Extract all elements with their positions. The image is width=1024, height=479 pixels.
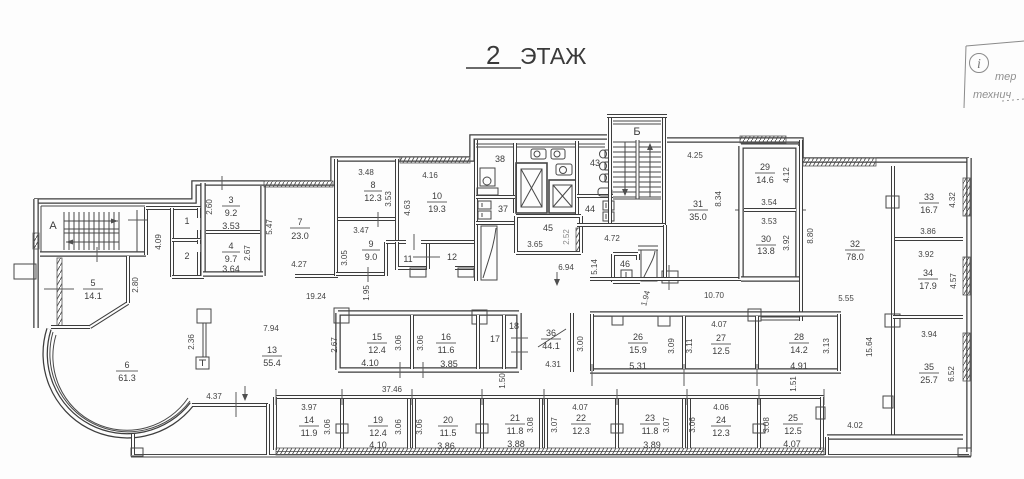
svg-text:12: 12 bbox=[447, 252, 457, 262]
svg-text:21: 21 bbox=[510, 413, 520, 423]
svg-text:2.60: 2.60 bbox=[205, 199, 214, 215]
svg-text:А: А bbox=[49, 220, 57, 232]
svg-text:2: 2 bbox=[184, 251, 189, 261]
svg-text:6: 6 bbox=[124, 360, 129, 370]
svg-text:7: 7 bbox=[297, 217, 302, 227]
svg-text:4.31: 4.31 bbox=[545, 360, 561, 369]
svg-text:3.13: 3.13 bbox=[822, 338, 831, 354]
svg-text:3.05: 3.05 bbox=[340, 250, 349, 266]
svg-text:3.07: 3.07 bbox=[550, 417, 559, 433]
svg-text:4.32: 4.32 bbox=[948, 192, 957, 208]
svg-text:4.02: 4.02 bbox=[847, 421, 863, 430]
svg-text:3.92: 3.92 bbox=[918, 250, 934, 259]
svg-text:9.7: 9.7 bbox=[225, 254, 238, 264]
svg-text:5.47: 5.47 bbox=[265, 219, 274, 235]
svg-text:4.91: 4.91 bbox=[790, 361, 808, 371]
svg-text:5.14: 5.14 bbox=[590, 259, 599, 275]
svg-text:6.52: 6.52 bbox=[947, 366, 956, 382]
svg-text:33: 33 bbox=[924, 192, 934, 202]
svg-text:3.92: 3.92 bbox=[782, 235, 791, 251]
svg-text:6.94: 6.94 bbox=[558, 263, 574, 272]
svg-text:37.46: 37.46 bbox=[382, 385, 403, 394]
svg-text:45: 45 bbox=[543, 223, 553, 233]
svg-text:3.88: 3.88 bbox=[507, 439, 525, 449]
svg-text:4.27: 4.27 bbox=[291, 260, 307, 269]
svg-text:3: 3 bbox=[228, 195, 233, 205]
svg-text:3.06: 3.06 bbox=[394, 335, 403, 351]
svg-text:9.0: 9.0 bbox=[365, 252, 378, 262]
svg-text:5.55: 5.55 bbox=[838, 294, 854, 303]
svg-text:4.63: 4.63 bbox=[403, 200, 412, 216]
svg-text:2.80: 2.80 bbox=[131, 277, 140, 293]
svg-text:3.00: 3.00 bbox=[576, 336, 585, 352]
svg-text:14.2: 14.2 bbox=[790, 345, 808, 355]
svg-text:32: 32 bbox=[850, 239, 860, 249]
svg-text:4.07: 4.07 bbox=[711, 320, 727, 329]
svg-text:1.51: 1.51 bbox=[789, 376, 798, 392]
svg-text:3.08: 3.08 bbox=[526, 417, 535, 433]
svg-text:12.3: 12.3 bbox=[364, 193, 382, 203]
svg-text:24: 24 bbox=[716, 415, 726, 425]
svg-text:11.6: 11.6 bbox=[438, 345, 455, 355]
svg-text:31: 31 bbox=[693, 199, 703, 209]
svg-text:78.0: 78.0 bbox=[846, 252, 864, 262]
svg-text:61.3: 61.3 bbox=[118, 373, 136, 383]
svg-text:11.8: 11.8 bbox=[642, 426, 659, 436]
svg-text:28: 28 bbox=[794, 332, 804, 342]
svg-text:18: 18 bbox=[509, 321, 519, 331]
svg-text:12.4: 12.4 bbox=[368, 345, 386, 355]
svg-text:8.34: 8.34 bbox=[714, 191, 723, 207]
svg-text:4.06: 4.06 bbox=[713, 403, 729, 412]
svg-text:22: 22 bbox=[576, 413, 586, 423]
svg-text:29: 29 bbox=[760, 162, 770, 172]
svg-text:9.2: 9.2 bbox=[225, 208, 238, 218]
svg-text:3.86: 3.86 bbox=[920, 227, 936, 236]
svg-text:ЭТАЖ: ЭТАЖ bbox=[520, 43, 586, 69]
svg-text:19.24: 19.24 bbox=[306, 292, 327, 301]
svg-text:1.95: 1.95 bbox=[362, 285, 371, 301]
svg-text:3.06: 3.06 bbox=[688, 417, 697, 433]
svg-text:25: 25 bbox=[788, 413, 798, 423]
svg-text:3.86: 3.86 bbox=[437, 441, 455, 451]
svg-text:35: 35 bbox=[924, 362, 934, 372]
svg-text:26: 26 bbox=[633, 332, 643, 342]
svg-text:8.80: 8.80 bbox=[806, 228, 815, 244]
svg-text:3.89: 3.89 bbox=[643, 440, 661, 450]
svg-text:19: 19 bbox=[373, 415, 383, 425]
svg-text:3.06: 3.06 bbox=[394, 419, 403, 435]
svg-text:38: 38 bbox=[495, 154, 505, 164]
svg-text:3.53: 3.53 bbox=[222, 221, 240, 231]
svg-text:2.36: 2.36 bbox=[187, 334, 196, 350]
svg-text:3.11: 3.11 bbox=[685, 338, 694, 354]
svg-text:тер: тер bbox=[995, 71, 1016, 83]
svg-text:10.70: 10.70 bbox=[704, 291, 725, 300]
svg-text:14: 14 bbox=[304, 415, 314, 425]
svg-text:3.65: 3.65 bbox=[527, 240, 543, 249]
svg-text:27: 27 bbox=[716, 333, 726, 343]
svg-text:15: 15 bbox=[372, 332, 382, 342]
svg-text:1: 1 bbox=[184, 216, 189, 226]
svg-text:43: 43 bbox=[590, 158, 600, 168]
svg-text:11.9: 11.9 bbox=[301, 428, 318, 438]
svg-text:2: 2 bbox=[486, 40, 500, 70]
svg-text:3.97: 3.97 bbox=[301, 403, 317, 412]
svg-text:17.9: 17.9 bbox=[919, 281, 937, 291]
svg-text:3.06: 3.06 bbox=[416, 335, 425, 351]
svg-text:3.64: 3.64 bbox=[222, 264, 240, 274]
svg-text:44: 44 bbox=[585, 204, 595, 214]
svg-text:3.08: 3.08 bbox=[762, 417, 771, 433]
svg-text:3.54: 3.54 bbox=[761, 198, 777, 207]
svg-text:5.31: 5.31 bbox=[629, 361, 647, 371]
svg-text:4.16: 4.16 bbox=[422, 171, 438, 180]
svg-text:12.3: 12.3 bbox=[712, 428, 730, 438]
svg-text:16.7: 16.7 bbox=[920, 205, 938, 215]
svg-text:4.12: 4.12 bbox=[782, 167, 791, 183]
svg-text:1.94: 1.94 bbox=[639, 289, 652, 307]
svg-text:23: 23 bbox=[645, 413, 655, 423]
svg-text:i: i bbox=[977, 57, 981, 72]
svg-text:3.07: 3.07 bbox=[662, 417, 671, 433]
svg-text:23.0: 23.0 bbox=[291, 231, 309, 241]
svg-text:4.09: 4.09 bbox=[154, 234, 163, 250]
svg-text:4.72: 4.72 bbox=[604, 234, 620, 243]
svg-text:12.5: 12.5 bbox=[712, 346, 730, 356]
svg-text:2.67: 2.67 bbox=[243, 245, 252, 261]
svg-text:37: 37 bbox=[498, 204, 508, 214]
svg-text:11.5: 11.5 bbox=[440, 428, 457, 438]
svg-text:2.52: 2.52 bbox=[562, 229, 571, 245]
svg-text:15.64: 15.64 bbox=[865, 336, 874, 357]
svg-text:3.53: 3.53 bbox=[384, 191, 393, 207]
svg-text:2.67: 2.67 bbox=[330, 337, 339, 353]
svg-text:14.1: 14.1 bbox=[84, 291, 102, 301]
svg-text:Б: Б bbox=[633, 126, 640, 138]
svg-text:3.94: 3.94 bbox=[921, 330, 937, 339]
svg-text:19.3: 19.3 bbox=[428, 204, 446, 214]
svg-text:1.50: 1.50 bbox=[498, 373, 507, 389]
svg-text:3.06: 3.06 bbox=[323, 419, 332, 435]
svg-text:3.09: 3.09 bbox=[667, 338, 676, 354]
svg-text:11.8: 11.8 bbox=[507, 426, 524, 436]
svg-text:технич: технич bbox=[973, 89, 1011, 101]
svg-text:3.06: 3.06 bbox=[415, 419, 424, 435]
svg-text:25.7: 25.7 bbox=[920, 375, 938, 385]
svg-text:4: 4 bbox=[228, 241, 233, 251]
svg-text:34: 34 bbox=[923, 268, 933, 278]
svg-text:10: 10 bbox=[432, 191, 442, 201]
svg-text:13.8: 13.8 bbox=[757, 246, 775, 256]
svg-text:55.4: 55.4 bbox=[263, 358, 281, 368]
svg-text:8: 8 bbox=[370, 180, 375, 190]
svg-text:46: 46 bbox=[620, 259, 630, 269]
svg-text:3.85: 3.85 bbox=[440, 359, 458, 369]
svg-text:3.47: 3.47 bbox=[353, 226, 369, 235]
svg-text:16: 16 bbox=[441, 332, 451, 342]
svg-text:4.07: 4.07 bbox=[783, 439, 801, 449]
svg-text:30: 30 bbox=[761, 234, 771, 244]
svg-text:13: 13 bbox=[267, 345, 277, 355]
svg-text:5: 5 bbox=[90, 278, 95, 288]
svg-text:4.37: 4.37 bbox=[206, 392, 222, 401]
svg-text:9: 9 bbox=[368, 239, 373, 249]
svg-text:3.53: 3.53 bbox=[761, 217, 777, 226]
svg-text:4.10: 4.10 bbox=[369, 440, 387, 450]
svg-text:12.3: 12.3 bbox=[572, 426, 590, 436]
svg-text:4.25: 4.25 bbox=[687, 151, 703, 160]
svg-text:12.5: 12.5 bbox=[784, 426, 802, 436]
svg-text:15.9: 15.9 bbox=[629, 345, 647, 355]
svg-text:12.4: 12.4 bbox=[369, 428, 387, 438]
svg-text:3.48: 3.48 bbox=[358, 168, 374, 177]
svg-text:14.6: 14.6 bbox=[756, 175, 774, 185]
svg-text:17: 17 bbox=[490, 334, 500, 344]
svg-text:7.94: 7.94 bbox=[263, 324, 279, 333]
svg-text:4.07: 4.07 bbox=[572, 403, 588, 412]
svg-text:11: 11 bbox=[403, 254, 412, 264]
svg-text:4.10: 4.10 bbox=[361, 358, 379, 368]
svg-text:35.0: 35.0 bbox=[689, 212, 707, 222]
svg-text:20: 20 bbox=[443, 415, 453, 425]
svg-text:4.57: 4.57 bbox=[949, 273, 958, 289]
